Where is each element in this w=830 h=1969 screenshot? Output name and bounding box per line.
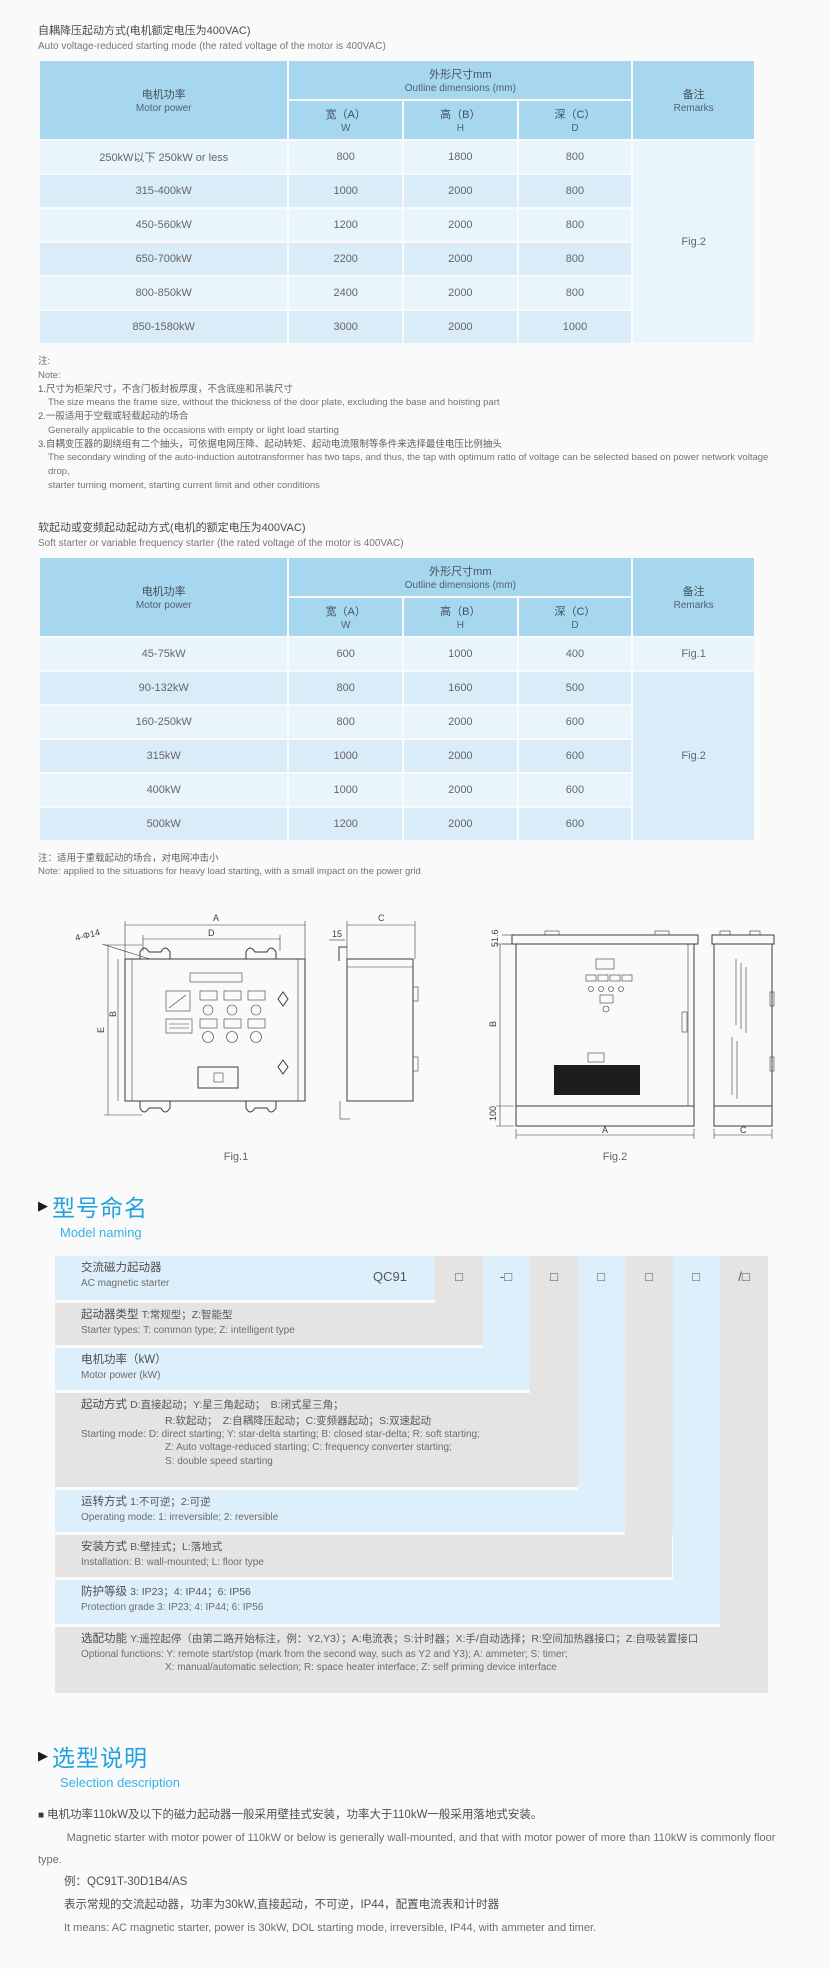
- note-line: 注:: [38, 355, 792, 369]
- header-width: 宽（A）W: [289, 598, 402, 636]
- cell-w: 1000: [289, 774, 402, 806]
- square-bullet-icon: ■: [38, 1810, 44, 1821]
- cell-h: 2000: [404, 706, 517, 738]
- code-column-strip: [720, 1256, 768, 1627]
- cell-remark-fig2: Fig.2: [633, 141, 754, 343]
- note-line: The size means the frame size, without t…: [38, 396, 792, 410]
- selection-paragraph-zh: ■电机功率110kW及以下的磁力起动器一般采用壁挂式安装，功率大于110kW一般…: [38, 1804, 790, 1827]
- cell-d: 600: [519, 740, 632, 772]
- header-width: 宽（A）W: [289, 101, 402, 139]
- model-prefix: QC91: [373, 1269, 407, 1284]
- soft-starter-dimensions-table: 电机功率Motor power 外形尺寸mmOutline dimensions…: [38, 556, 756, 842]
- svg-text:B: B: [108, 1011, 118, 1017]
- figure-1: A D 4-Φ14: [50, 907, 422, 1163]
- model-code-box: □: [455, 1269, 463, 1284]
- table2-title-zh: 软起动或变频起动起动方式(电机的额定电压为400VAC): [38, 519, 792, 535]
- selection-body: ■电机功率110kW及以下的磁力起动器一般采用壁挂式安装，功率大于110kW一般…: [38, 1804, 790, 1939]
- cell-power: 450-560kW: [40, 209, 287, 241]
- cell-d: 800: [519, 243, 632, 275]
- wall-mounted-cabinet-drawing: A D 4-Φ14: [50, 907, 422, 1145]
- cell-d: 800: [519, 141, 632, 173]
- selection-paragraph-en: Magnetic starter with motor power of 110…: [38, 1827, 790, 1871]
- table2-title-en: Soft starter or variable frequency start…: [38, 538, 792, 549]
- model-naming-title-zh: 型号命名: [52, 1195, 148, 1221]
- svg-text:100: 100: [488, 1106, 498, 1121]
- table2-notes: 注：适用于重载起动的场合，对电网冲击小 Note: applied to the…: [38, 852, 792, 880]
- cell-w: 1200: [289, 209, 402, 241]
- svg-text:D: D: [208, 928, 215, 938]
- row-optional-functions: 选配功能 Y:遥控起停（由第二路开始标注，例：Y2,Y3）；A:电流表；S:计时…: [55, 1627, 768, 1693]
- svg-text:51.6: 51.6: [490, 930, 500, 948]
- model-code-box: □: [692, 1269, 700, 1284]
- figure-2-caption: Fig.2: [450, 1151, 780, 1163]
- header-remarks: 备注Remarks: [633, 558, 754, 636]
- cell-power: 850-1580kW: [40, 311, 287, 343]
- note-line: Note:: [38, 369, 792, 383]
- note-line: 注：适用于重载起动的场合，对电网冲击小: [38, 852, 792, 866]
- cell-h: 2000: [404, 808, 517, 840]
- cell-power: 800-850kW: [40, 277, 287, 309]
- svg-text:C: C: [378, 913, 385, 923]
- model-code-row: QC91 □ -□ □ □ □ □ /□: [55, 1256, 770, 1300]
- row-operating-mode: 运转方式 1:不可逆；2:可逆 Operating mode: 1: irrev…: [55, 1490, 625, 1532]
- model-naming-title-en: Model naming: [60, 1225, 792, 1240]
- note-line: Generally applicable to the occasions wi…: [38, 424, 792, 438]
- cell-h: 2000: [404, 243, 517, 275]
- selection-example-desc-zh: 表示常规的交流起动器，功率为30kW,直接起动，不可逆，IP44，配置电流表和计…: [38, 1894, 790, 1917]
- note-line: The secondary winding of the auto-induct…: [38, 451, 792, 479]
- model-code-box: -□: [500, 1269, 512, 1284]
- header-height: 高（B）H: [404, 101, 517, 139]
- header-depth: 深（C）D: [519, 101, 632, 139]
- row-protection-grade: 防护等级 3: IP23；4: IP44；6: IP56 Protection …: [55, 1580, 720, 1624]
- header-height: 高（B）H: [404, 598, 517, 636]
- model-naming-diagram: 交流磁力起动器 AC magnetic starter 起动器类型 T:常规型；…: [55, 1256, 770, 1693]
- note-line: 2.一般适用于空载或轻载起动的场合: [38, 410, 792, 424]
- cell-power: 315kW: [40, 740, 287, 772]
- cell-d: 800: [519, 175, 632, 207]
- header-motor-power: 电机功率Motor power: [40, 558, 287, 636]
- floor-cabinet-drawing: 51.6 B 100 A: [450, 907, 780, 1145]
- model-naming-heading: ▶型号命名 Model naming: [38, 1189, 792, 1240]
- cell-w: 2200: [289, 243, 402, 275]
- note-line: starter turning moment, starting current…: [38, 479, 792, 493]
- table-header-row: 电机功率Motor power 外形尺寸mmOutline dimensions…: [40, 558, 754, 596]
- row-starter-type: 起动器类型 T:常规型；Z:智能型 Starter types: T: comm…: [55, 1303, 483, 1345]
- row-installation: 安装方式 B:壁挂式；L:落地式 Installation: B: wall-m…: [55, 1535, 672, 1577]
- note-line: 3.自耦变压器的副绕组有二个抽头，可依据电网压降、起动转矩、起动电流限制等条件来…: [38, 438, 792, 452]
- cell-d: 1000: [519, 311, 632, 343]
- table1-title-zh: 自耦降压起动方式(电机额定电压为400VAC): [38, 22, 792, 38]
- cell-power: 400kW: [40, 774, 287, 806]
- table-row: 45-75kW 600 1000 400 Fig.1: [40, 638, 754, 670]
- cell-w: 2400: [289, 277, 402, 309]
- dimension-figures: A D 4-Φ14: [38, 907, 792, 1163]
- selection-title-zh: 选型说明: [52, 1745, 148, 1771]
- cell-remark-fig2: Fig.2: [633, 672, 754, 840]
- table1-notes: 注: Note: 1.尺寸为柜架尺寸，不含门板封板厚度，不含底座和吊装尺寸 Th…: [38, 355, 792, 493]
- model-code-box: /□: [738, 1269, 749, 1284]
- selection-example-desc-en: It means: AC magnetic starter, power is …: [38, 1917, 790, 1939]
- svg-text:B: B: [488, 1021, 498, 1027]
- svg-text:C: C: [740, 1125, 747, 1135]
- cell-h: 2000: [404, 774, 517, 806]
- row-starting-mode: 起动方式 D:直接起动；Y:星三角起动； B:闭式星三角； R:软起动； Z:自…: [55, 1393, 578, 1487]
- header-outline-dimensions: 外形尺寸mmOutline dimensions (mm): [289, 558, 631, 596]
- cell-d: 600: [519, 774, 632, 806]
- cell-d: 800: [519, 277, 632, 309]
- cell-power: 500kW: [40, 808, 287, 840]
- cell-d: 600: [519, 706, 632, 738]
- table-header-row: 电机功率Motor power 外形尺寸mmOutline dimensions…: [40, 61, 754, 99]
- cell-h: 1600: [404, 672, 517, 704]
- cell-w: 1000: [289, 175, 402, 207]
- cell-h: 2000: [404, 311, 517, 343]
- figure-1-caption: Fig.1: [50, 1151, 422, 1163]
- code-column-strip: [673, 1256, 720, 1580]
- cell-power: 315-400kW: [40, 175, 287, 207]
- cell-power: 160-250kW: [40, 706, 287, 738]
- cell-remark-fig1: Fig.1: [633, 638, 754, 670]
- svg-text:A: A: [213, 913, 219, 923]
- cell-w: 3000: [289, 311, 402, 343]
- selection-title-en: Selection description: [60, 1775, 792, 1790]
- svg-text:4-Φ14: 4-Φ14: [74, 927, 101, 943]
- cell-power: 45-75kW: [40, 638, 287, 670]
- cell-h: 2000: [404, 209, 517, 241]
- header-depth: 深（C）D: [519, 598, 632, 636]
- row-motor-power: 电机功率（kW） Motor power (kW): [55, 1348, 530, 1390]
- model-code-box: □: [645, 1269, 653, 1284]
- cell-w: 600: [289, 638, 402, 670]
- model-code-box: □: [597, 1269, 605, 1284]
- section-arrow-icon: ▶: [38, 1748, 48, 1763]
- cell-h: 2000: [404, 277, 517, 309]
- table-row: 90-132kW 800 1600 500 Fig.2: [40, 672, 754, 704]
- cell-d: 600: [519, 808, 632, 840]
- cell-power: 650-700kW: [40, 243, 287, 275]
- table1-title-en: Auto voltage-reduced starting mode (the …: [38, 41, 792, 52]
- cell-w: 1200: [289, 808, 402, 840]
- model-code-box: □: [550, 1269, 558, 1284]
- selection-example: 例：QC91T-30D1B4/AS: [38, 1871, 790, 1894]
- cell-w: 800: [289, 672, 402, 704]
- cell-h: 1000: [404, 638, 517, 670]
- header-remarks: 备注Remarks: [633, 61, 754, 139]
- svg-text:A: A: [602, 1125, 608, 1135]
- cell-d: 800: [519, 209, 632, 241]
- cell-power: 250kW以下 250kW or less: [40, 141, 287, 173]
- selection-heading: ▶选型说明 Selection description: [38, 1739, 792, 1790]
- cell-h: 2000: [404, 740, 517, 772]
- cell-d: 400: [519, 638, 632, 670]
- note-line: Note: applied to the situations for heav…: [38, 865, 792, 879]
- svg-text:15: 15: [332, 929, 342, 939]
- figure-2: 51.6 B 100 A: [450, 907, 780, 1163]
- auto-voltage-dimensions-table: 电机功率Motor power 外形尺寸mmOutline dimensions…: [38, 59, 756, 345]
- svg-text:E: E: [96, 1027, 106, 1033]
- cell-h: 1800: [404, 141, 517, 173]
- cell-w: 800: [289, 706, 402, 738]
- cell-w: 800: [289, 141, 402, 173]
- header-motor-power: 电机功率Motor power: [40, 61, 287, 139]
- cell-h: 2000: [404, 175, 517, 207]
- cell-w: 1000: [289, 740, 402, 772]
- cell-d: 500: [519, 672, 632, 704]
- header-outline-dimensions: 外形尺寸mmOutline dimensions (mm): [289, 61, 631, 99]
- note-line: 1.尺寸为柜架尺寸，不含门板封板厚度，不含底座和吊装尺寸: [38, 383, 792, 397]
- section-arrow-icon: ▶: [38, 1198, 48, 1213]
- cell-power: 90-132kW: [40, 672, 287, 704]
- table-row: 250kW以下 250kW or less 800 1800 800 Fig.2: [40, 141, 754, 173]
